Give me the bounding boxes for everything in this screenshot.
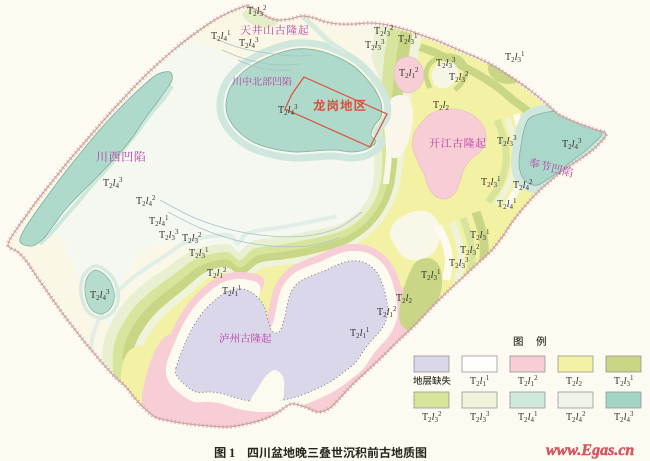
svg-text:www.Egas.cn: www.Egas.cn [546,442,634,459]
svg-text:1: 1 [229,446,235,460]
